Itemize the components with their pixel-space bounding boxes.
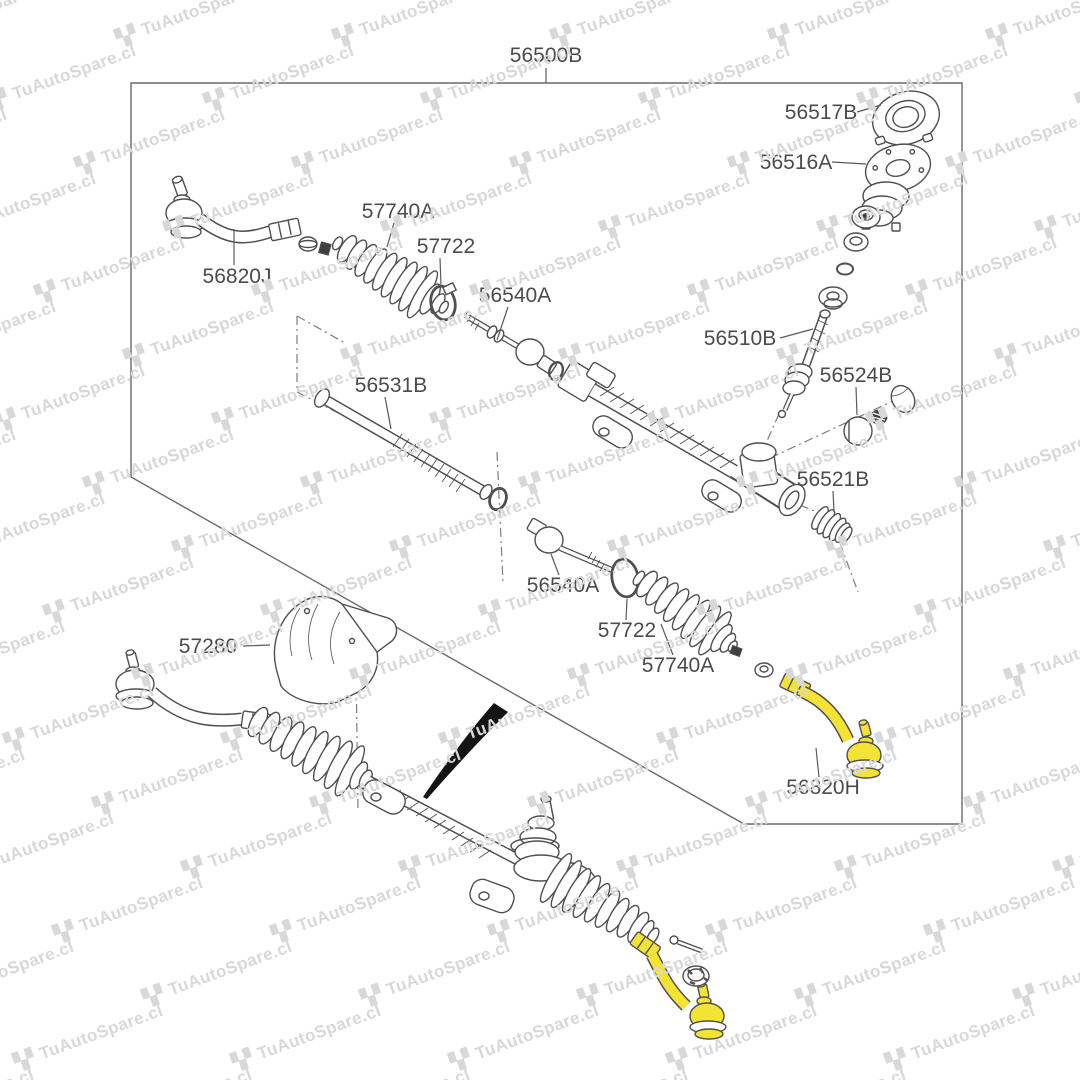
label-56517B: 56517B	[785, 101, 857, 124]
part-tie-rod-end-right	[779, 673, 883, 778]
part-pin-and-nut	[670, 936, 709, 986]
label-57722-lower: 57722	[598, 619, 656, 642]
direction-wedge	[423, 703, 508, 799]
part-yoke-plug-group	[844, 381, 919, 445]
part-heat-protector	[274, 597, 396, 704]
part-assembled-gear	[116, 649, 726, 1039]
part-tie-rod-end-left	[166, 175, 331, 255]
label-56510B: 56510B	[704, 327, 776, 350]
label-56500B: 56500B	[510, 44, 582, 67]
part-inner-tie-rod-lower	[527, 518, 612, 571]
part-small-fasteners	[730, 646, 773, 677]
label-57280: 57280	[179, 635, 237, 658]
parts-diagram-canvas: 56500B 56517B 56516A 56820J 57740A 57722…	[0, 0, 1080, 1080]
label-56820J: 56820J	[203, 265, 272, 288]
label-56540A-upper: 56540A	[479, 284, 551, 307]
label-56524B: 56524B	[820, 364, 892, 387]
part-gear-housing	[557, 360, 810, 520]
part-inner-tie-rod-upper	[464, 311, 565, 382]
label-56516A: 56516A	[760, 151, 832, 174]
label-56531B: 56531B	[355, 374, 427, 397]
part-bearing-stack	[819, 206, 880, 309]
label-57740A-lower: 57740A	[642, 654, 714, 677]
label-57722-upper: 57722	[417, 235, 475, 258]
label-56820H: 56820H	[786, 776, 860, 799]
steering-gear-exploded-diagram: 56500B 56517B 56516A 56820J 57740A 57722…	[0, 0, 1080, 1080]
part-rack-bush	[808, 504, 857, 549]
label-56540A-lower: 56540A	[527, 574, 599, 597]
label-56521B: 56521B	[797, 468, 869, 491]
part-rack-bar	[312, 386, 510, 512]
label-57740A-upper: 57740A	[362, 200, 434, 223]
